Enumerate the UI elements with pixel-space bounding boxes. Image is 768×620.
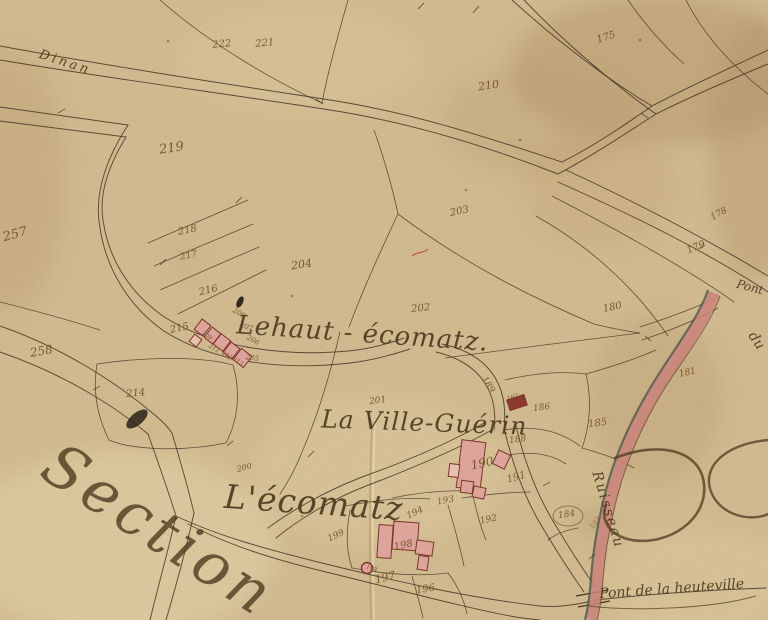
building: [417, 555, 429, 570]
parcel-number-222: 222: [211, 38, 232, 51]
building: [472, 486, 486, 499]
building: [377, 525, 393, 559]
parcel-number-214: 214: [125, 387, 146, 400]
parcel-number-202: 202: [410, 302, 431, 315]
parcel-number-221: 221: [254, 37, 275, 50]
building: [460, 480, 473, 493]
cadastral-map-sheet: 2222211752102192572182172042032162022082…: [0, 0, 768, 620]
map-canvas: 2222211752102192572182172042032162022082…: [0, 0, 768, 620]
building: [415, 540, 434, 556]
building: [448, 463, 460, 477]
